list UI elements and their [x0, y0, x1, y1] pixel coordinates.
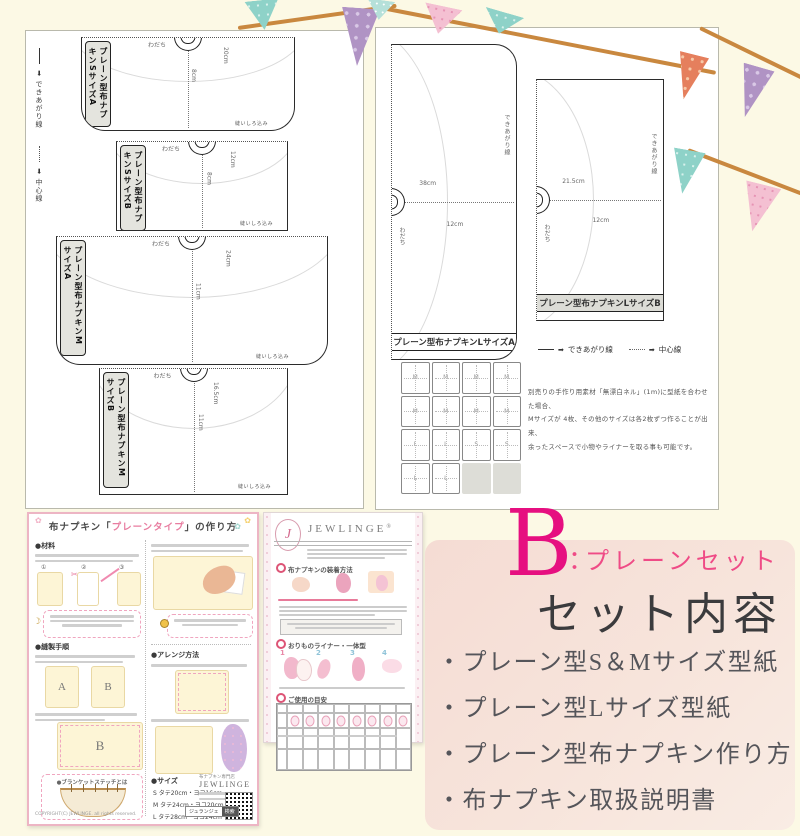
arrange-text [151, 661, 251, 670]
flower-icon: ✿ [35, 516, 42, 525]
length-dim: 38cm [419, 180, 436, 187]
pattern-l-b: 21.5cm 12cm わだち できあがり線 プレーン型布ナプキンLサイズB [536, 79, 664, 321]
set-item: ・プレーン型布ナプキン作り方 [437, 734, 792, 769]
center-line [188, 40, 189, 128]
section-materials: ●材料 [35, 541, 55, 551]
step-3-num: 3 [350, 649, 355, 657]
step-1-napkin-2 [296, 659, 312, 681]
solid-line-sample [538, 349, 554, 350]
legend-center-line-vertical: ➡ 中心線 [34, 143, 44, 202]
body-text [278, 604, 408, 618]
steps-caption [278, 685, 408, 691]
liner-illustration [292, 577, 310, 592]
holder-napkin [376, 575, 388, 591]
moon-icon: ☽ [33, 617, 41, 627]
grid-cell: L [432, 463, 461, 495]
copyright: COPYRIGHT(C) JEWLINGE. all rights reserv… [35, 812, 136, 817]
damask-border [415, 513, 422, 742]
center-line [394, 202, 514, 203]
piece-a: A [45, 666, 79, 708]
pattern-s-b: プレーン型布ナプキンSサイズB わだち 12cm 8cm 縫いしろ込み [116, 141, 288, 231]
pattern-m-a: プレーン型布ナプキンMサイズA わだち 24cm 11cm 縫いしろ込み [56, 236, 328, 365]
length-dim: 21.5cm [562, 178, 585, 185]
dotted-rule [151, 644, 251, 645]
layout-note: 別売りの手作り用素材「無漂白ネル」(1m)に型紙を合わせた場合、 Mサイズが 4… [528, 386, 710, 454]
section-stitch: ●ブランケットステッチとは [42, 778, 142, 786]
grid-cell: M [401, 362, 430, 394]
product-image: ➡ できあがり線 ➡ 中心線 プレーン型布ナプキンSサイズA わだち 20cm … [0, 0, 800, 836]
grid-cell: S [462, 429, 491, 461]
height-dim: 8cm [190, 69, 197, 82]
seam-note: 縫いしろ込み [235, 120, 268, 127]
pattern-m-b: プレーン型布ナプキンMサイズB わだち 16.5cm 11cm 縫いしろ込み [99, 368, 288, 495]
intro-text [306, 547, 410, 561]
damask-border [264, 513, 271, 742]
step-2-num: 2 [316, 649, 321, 657]
grid-cell: L [401, 463, 430, 495]
fold-label: わだち [542, 224, 551, 242]
napkin-illustration [336, 573, 351, 593]
center-line [194, 371, 195, 492]
width-dim: 12cm [447, 221, 464, 228]
materials-text [35, 551, 141, 565]
step-number: ③ [119, 564, 124, 571]
step-3-napkin [352, 657, 365, 681]
fold-label: わだち [397, 227, 406, 245]
howto-title-post: 」の作り方 [185, 522, 238, 533]
care-brand: JEWLINGE® [308, 523, 394, 535]
dotted-line-sample [39, 146, 40, 162]
pink-caption [278, 599, 358, 601]
legend-center-label: 中心線 [659, 344, 682, 355]
section-steps: ●縫製手順 [35, 642, 69, 652]
width-dim: 24cm [224, 250, 231, 267]
search-button-graphic: 検索 [222, 807, 238, 816]
step-4-num: 4 [382, 649, 387, 657]
fabric-diagram [37, 572, 63, 606]
width-dim: 12cm [592, 217, 609, 224]
pattern-label: プレーン型布ナプキンSサイズB [120, 145, 146, 231]
grid-cell: L [401, 429, 430, 461]
pattern-label: プレーン型布ナプキンMサイズB [103, 372, 129, 488]
flower-icon: ✿ [244, 516, 251, 525]
set-name: プレーンセット [585, 541, 780, 576]
legend-finish-line-vertical: ➡ できあがり線 [34, 45, 44, 128]
height-dim: 11cm [195, 283, 202, 300]
howto-title-em: プレーンタイプ [112, 522, 185, 533]
monogram-badge: J [275, 519, 301, 551]
brand-logo-text: JEWLINGE [199, 780, 253, 789]
grid-cell: M [462, 396, 491, 428]
legend-row: ➡ できあがり線 ➡ 中心線 [538, 344, 681, 355]
arrow-icon: ➡ [649, 346, 655, 354]
note-box [280, 619, 402, 635]
table-footnote [276, 733, 410, 739]
howto-title-pre: 布ナプキン「 [49, 522, 112, 533]
section-bullet-icon [276, 693, 286, 703]
care-sheet: J JEWLINGE® 布ナプキンの装着方法 おりものライナー・一体型 1 2 [263, 512, 423, 743]
howto-sheet: 布ナプキン「プレーンタイプ」の作り方 ✿ ✿ ✿ ●材料 ① ② ③ ✂ ☽ ●… [27, 512, 259, 826]
dotted-line-sample [629, 349, 645, 350]
step-2-napkin [315, 658, 333, 681]
tip-box: ☽ [43, 610, 141, 638]
center-line [539, 200, 661, 201]
step-1-num: 1 [280, 649, 285, 657]
fold-label: わだち [162, 144, 180, 153]
arrow-icon: ➡ [35, 168, 43, 175]
registered-icon: ® [386, 524, 394, 530]
section-arrange: ●アレンジ方法 [151, 650, 199, 660]
piece-b-label: B [104, 681, 111, 693]
legend-finish-label: できあがり線 [35, 80, 43, 128]
layout-note-line: Mサイズが 4枚、その他のサイズは各2枚ずつ作ることが出来、 [528, 413, 710, 440]
piece-b-large-label: B [96, 738, 105, 754]
width-dim: 12cm [229, 151, 236, 168]
search-box-graphic: ジュランジェ 検索 [185, 806, 239, 817]
arrow-icon: ➡ [35, 70, 43, 77]
care-brand-text: JEWLINGE [308, 523, 386, 535]
pattern-l-a: 38cm 12cm わだち できあがり線 プレーン型布ナプキンLサイズA [391, 44, 517, 360]
pattern-label: プレーン型布ナプキンLサイズB [536, 294, 664, 312]
header-rule [274, 541, 412, 546]
set-heading: セット内容 [430, 578, 782, 642]
step-number: ① [41, 564, 46, 571]
snap-diagram [155, 726, 213, 774]
grid-cell: M [432, 396, 461, 428]
fold-label: わだち [148, 40, 166, 49]
photo-block [153, 556, 253, 610]
layout-note-line: 別売りの手作り用素材「無漂白ネル」(1m)に型紙を合わせた場合、 [528, 386, 710, 413]
finish-line-label: できあがり線 [649, 133, 658, 175]
fabric-diagram [117, 572, 141, 606]
section-bullet-icon [276, 639, 286, 649]
piece-b-large: B [57, 722, 143, 770]
grid-cell: M [493, 396, 522, 428]
set-item: ・プレーン型S＆Mサイズ型紙 [437, 642, 779, 677]
step-number: ② [81, 564, 86, 571]
grid-cell: S [493, 429, 522, 461]
pattern-label: プレーン型布ナプキンLサイズA [391, 333, 517, 351]
pattern-sheet-l: 38cm 12cm わだち できあがり線 プレーン型布ナプキンLサイズA 21.… [375, 27, 719, 510]
legend-center-label: 中心線 [35, 178, 43, 202]
fold-label: わだち [152, 239, 170, 248]
tip-bubble [167, 614, 253, 638]
finish-text [151, 541, 251, 555]
grid-cell: M [493, 362, 522, 394]
bunting-flag-purple [729, 63, 774, 122]
piece-b: B [91, 666, 125, 708]
arrange-diagram [175, 670, 229, 714]
howto-title: 布ナプキン「プレーンタイプ」の作り方 [29, 519, 257, 533]
pattern-label: プレーン型布ナプキンSサイズA [85, 41, 111, 127]
legend-finish-label: できあがり線 [568, 344, 613, 355]
bunting-flag-pink [735, 180, 782, 235]
set-letter: B [505, 498, 573, 590]
seam-note: 縫いしろ込み [240, 220, 273, 227]
set-item: ・プレーン型Lサイズ型紙 [437, 688, 732, 723]
fold-label: わだち [154, 371, 172, 380]
bee-icon [160, 619, 169, 628]
width-dim: 20cm [222, 47, 229, 64]
arrow-icon: ➡ [558, 346, 564, 354]
pattern-s-a: プレーン型布ナプキンSサイズA わだち 20cm 8cm 縫いしろ込み [81, 37, 295, 131]
grid-cell: M [462, 362, 491, 394]
cutting-layout-grid: M M M M M M M M L L S S L L [401, 362, 521, 494]
pattern-label: プレーン型布ナプキンMサイズA [60, 240, 86, 356]
grid-cell: L [432, 429, 461, 461]
height-dim: 8cm [205, 172, 212, 185]
arrange-text2 [151, 716, 251, 725]
piece-a-label: A [58, 681, 66, 693]
grid-cell-empty [462, 463, 491, 495]
grid-cell: M [432, 362, 461, 394]
seam-note: 縫いしろ込み [256, 353, 289, 360]
center-line [192, 239, 193, 362]
width-dim: 16.5cm [212, 382, 219, 405]
steps-text [35, 652, 141, 666]
floral-napkin [221, 724, 247, 772]
flower-icon: ✿ [234, 522, 241, 531]
height-dim: 11cm [197, 414, 204, 431]
center-line [202, 144, 203, 228]
fabric-diagram [77, 572, 99, 606]
grid-cell: M [401, 396, 430, 428]
column-divider [145, 540, 146, 816]
solid-line-sample [39, 48, 40, 64]
set-item: ・布ナプキン取扱説明書 [437, 780, 717, 815]
pattern-sheet-sm: ➡ できあがり線 ➡ 中心線 プレーン型布ナプキンSサイズA わだち 20cm … [25, 30, 364, 509]
search-keyword: ジュランジェ [186, 807, 222, 816]
seam-note: 縫いしろ込み [238, 483, 271, 490]
layout-note-line: 余ったスペースで小物やライナーを取る事も可能です。 [528, 441, 710, 455]
finish-line-label: できあがり線 [502, 114, 511, 156]
scissors-icon: ✂ [71, 570, 78, 579]
section-bullet-icon [276, 563, 286, 573]
step-4-napkin [382, 659, 402, 673]
